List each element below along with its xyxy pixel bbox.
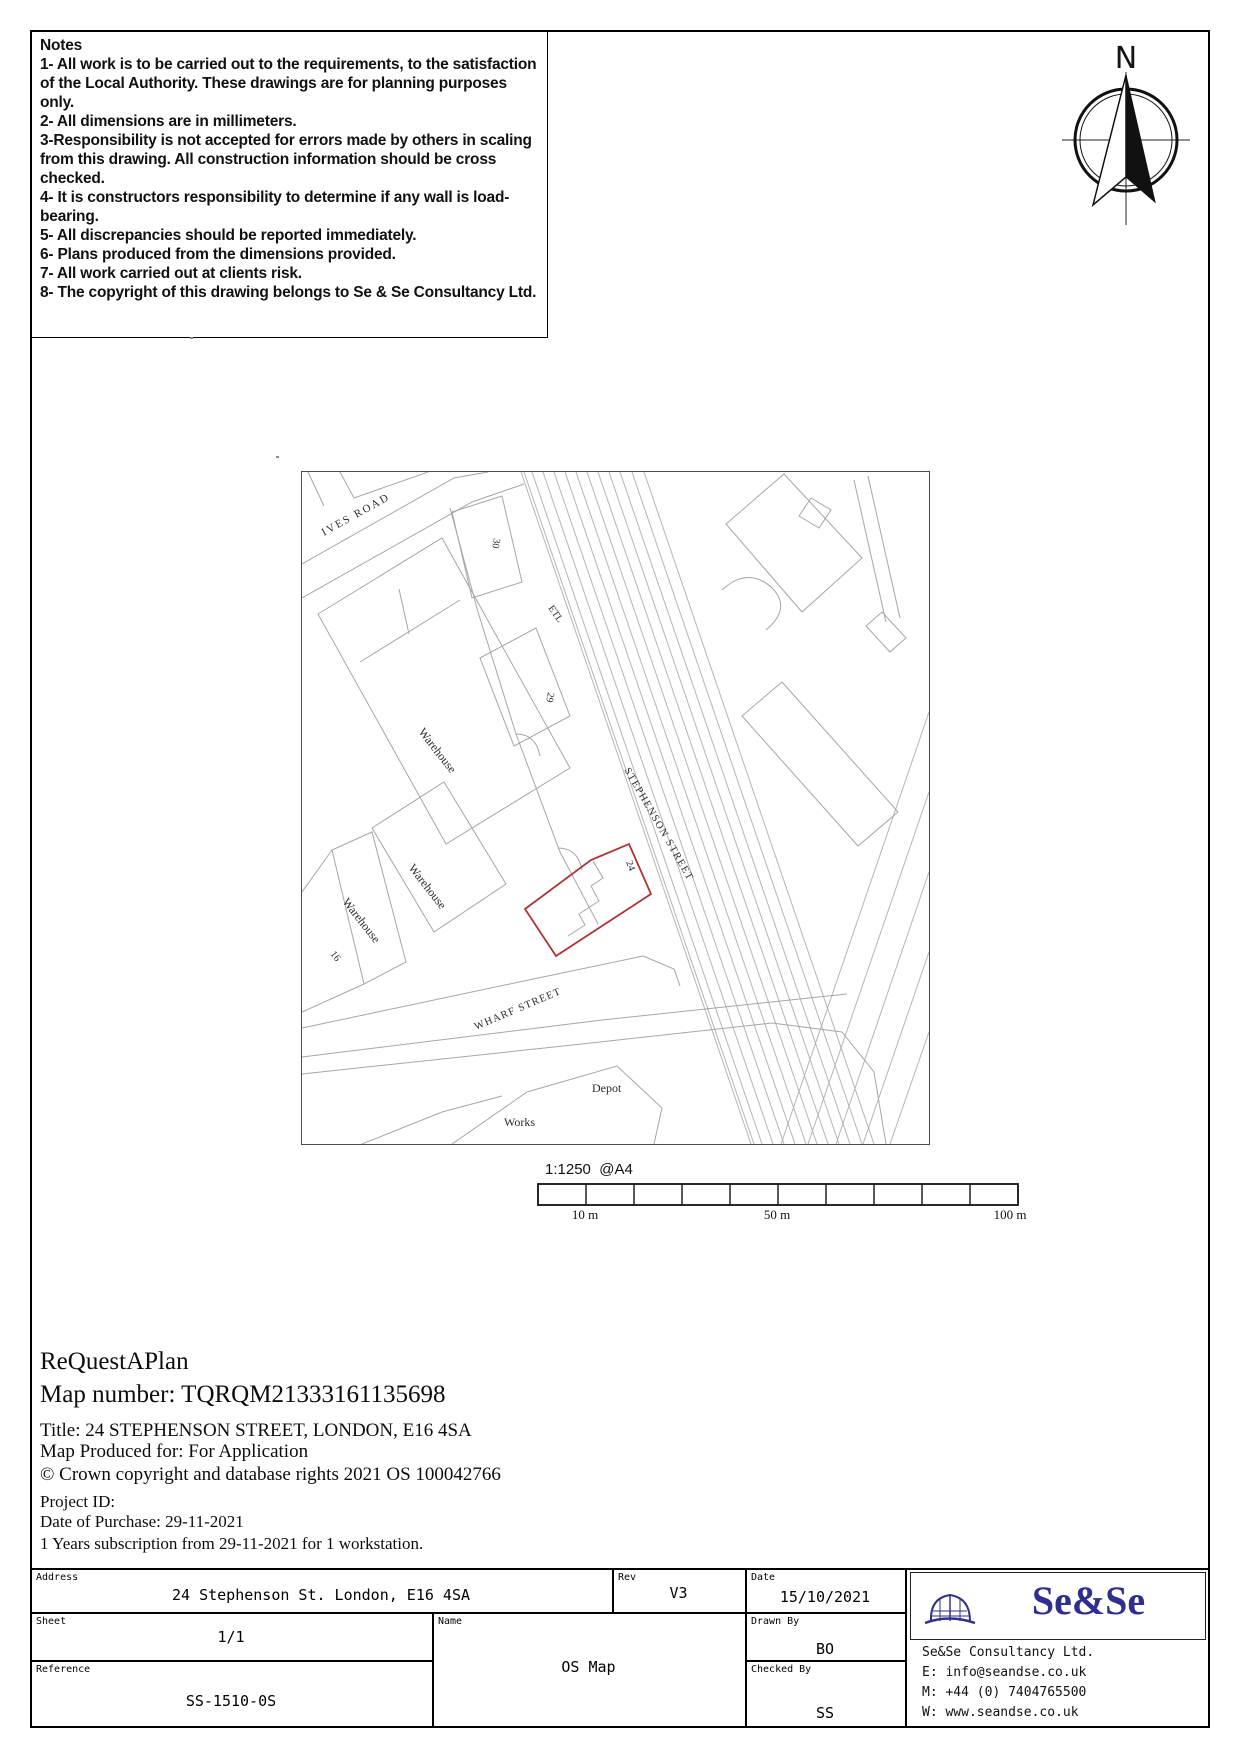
compass-north-label: N — [1115, 41, 1137, 76]
street-label-wharf-street: WHARF STREET — [473, 986, 563, 1033]
building-number-29: 29 — [543, 691, 556, 703]
address-label: Address — [36, 1572, 78, 1583]
label-warehouse-1: Warehouse — [416, 725, 460, 775]
title-block-border — [30, 1568, 1210, 1570]
company-logo-box: Se&Se — [910, 1572, 1206, 1640]
note-item: 3-Responsibility is not accepted for err… — [40, 131, 539, 188]
name-label: Name — [438, 1616, 462, 1627]
checked-by-value: SS — [745, 1704, 905, 1722]
subscription-line: 1 Years subscription from 29-11-2021 for… — [40, 1534, 423, 1554]
stray-mark — [190, 337, 193, 339]
note-item: 7- All work carried out at clients risk. — [40, 264, 539, 283]
copyright-line: © Crown copyright and database rights 20… — [40, 1464, 501, 1486]
scale-ratio-value: 1:1250 — [545, 1161, 591, 1178]
purchase-date-line: Date of Purchase: 29-11-2021 — [40, 1512, 244, 1532]
title-block-border — [905, 1568, 907, 1728]
sheet-value: 1/1 — [30, 1628, 432, 1646]
site-map: IVES ROAD 30 ETL Warehouse 29 Warehouse … — [301, 471, 930, 1145]
hard-hat-icon — [917, 1581, 981, 1631]
railway-lines — [521, 472, 929, 1144]
notes-box: Notes 1- All work is to be carried out t… — [32, 32, 548, 338]
title-block-border — [745, 1660, 905, 1662]
address-value: 24 Stephenson St. London, E16 4SA — [30, 1586, 612, 1604]
building-number-30: 30 — [489, 537, 502, 549]
note-item: 4- It is constructors responsibility to … — [40, 188, 539, 226]
name-value: OS Map — [432, 1658, 745, 1676]
reference-label: Reference — [36, 1664, 90, 1675]
building-number-16: 16 — [328, 949, 343, 964]
drawn-by-label: Drawn By — [751, 1616, 799, 1627]
map-produced-line: Map Produced for: For Application — [40, 1441, 308, 1463]
drawn-by-value: BO — [745, 1640, 905, 1658]
date-label: Date — [751, 1572, 775, 1583]
map-title-line: Title: 24 STEPHENSON STREET, LONDON, E16… — [40, 1420, 472, 1442]
date-value: 15/10/2021 — [745, 1588, 905, 1606]
note-item: 5- All discrepancies should be reported … — [40, 226, 539, 245]
title-block-border — [30, 1660, 432, 1662]
map-number-line: Map number: TQRQM21333161135698 — [40, 1381, 446, 1409]
scale-ratio: 1:1250 @A4 — [545, 1161, 633, 1178]
scale-tick-50m: 50 m — [747, 1207, 807, 1223]
company-logo-text: Se&Se — [981, 1577, 1196, 1624]
checked-by-label: Checked By — [751, 1664, 811, 1675]
company-phone-line: M: +44 (0) 7404765500 — [922, 1685, 1086, 1700]
note-item: 1- All work is to be carried out to the … — [40, 55, 539, 112]
label-etl: ETL — [546, 603, 566, 624]
compass-rose-icon: N — [1058, 30, 1198, 230]
rev-label: Rev — [618, 1572, 636, 1583]
drawing-sheet: Notes 1- All work is to be carried out t… — [0, 0, 1240, 1755]
note-item: 8- The copyright of this drawing belongs… — [40, 283, 539, 302]
note-item: 6- Plans produced from the dimensions pr… — [40, 245, 539, 264]
scale-tick-100m: 100 m — [975, 1207, 1045, 1223]
company-email-line: E: info@seandse.co.uk — [922, 1665, 1086, 1680]
label-depot: Depot — [592, 1081, 622, 1095]
company-web-line: W: www.seandse.co.uk — [922, 1705, 1079, 1720]
label-warehouse-3: Warehouse — [340, 895, 384, 945]
note-item: 2- All dimensions are in millimeters. — [40, 112, 539, 131]
reference-value: SS-1510-0S — [30, 1692, 432, 1710]
brand-name: ReQuestAPlan — [40, 1348, 189, 1376]
scale-paper-size: @A4 — [599, 1161, 633, 1178]
label-warehouse-2: Warehouse — [406, 861, 450, 911]
building-number-24: 24 — [623, 859, 637, 872]
stray-mark — [276, 456, 279, 458]
company-name-line: Se&Se Consultancy Ltd. — [922, 1645, 1094, 1660]
sheet-label: Sheet — [36, 1616, 66, 1627]
scale-tick-10m: 10 m — [555, 1207, 615, 1223]
rev-value: V3 — [612, 1584, 745, 1602]
street-label-ives-road: IVES ROAD — [320, 491, 393, 539]
title-block-border — [30, 1612, 905, 1614]
project-id-line: Project ID: — [40, 1492, 115, 1512]
notes-title: Notes — [40, 36, 539, 55]
label-works: Works — [504, 1115, 535, 1129]
